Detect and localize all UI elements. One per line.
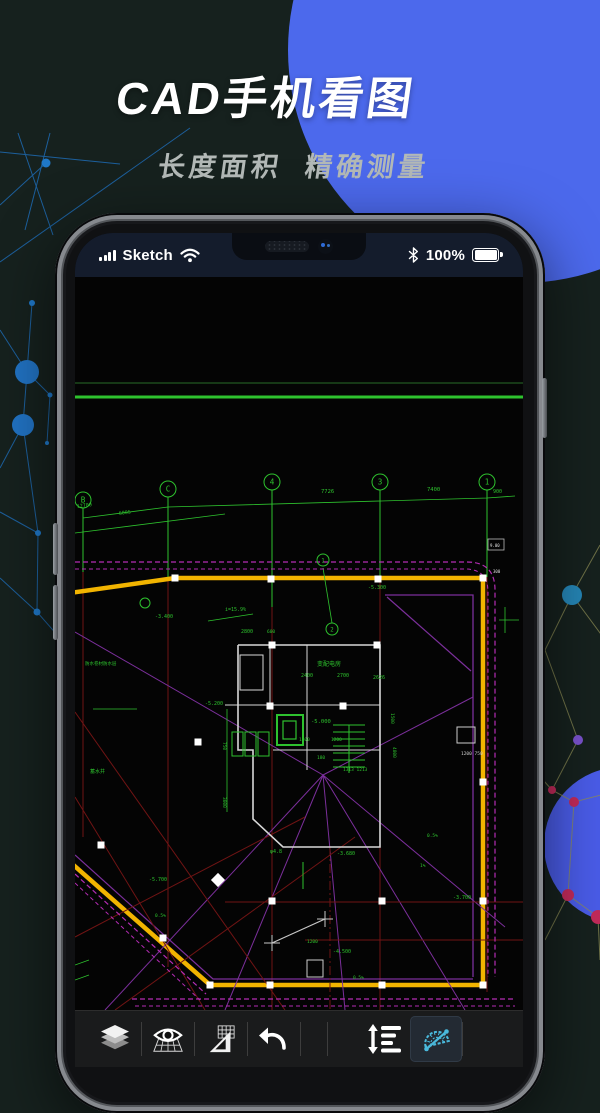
status-bar-left: Sketch (99, 247, 200, 264)
svg-text:1200: 1200 (307, 939, 318, 945)
phone-screen: Sketch 100% BC4311212700600577 (75, 233, 523, 1067)
toolbar-separator (327, 1022, 328, 1056)
svg-text:300: 300 (493, 569, 501, 574)
toolbar-separator (462, 1022, 463, 1056)
svg-text:-3.700: -3.700 (453, 895, 471, 901)
svg-text:2626: 2626 (373, 675, 385, 681)
cad-drawing[interactable]: BC4311212700600577267400900i=15.9%-3.400… (75, 277, 523, 1010)
svg-text:-5.700: -5.700 (149, 877, 167, 883)
wifi-icon (180, 248, 200, 263)
svg-text:0.5%: 0.5% (155, 913, 166, 919)
svg-text:7726: 7726 (321, 489, 334, 495)
svg-text:1500: 1500 (389, 713, 395, 724)
svg-text:1300: 1300 (299, 737, 310, 743)
svg-text:i=15.9%: i=15.9% (225, 607, 246, 613)
speaker-grille (265, 241, 309, 252)
svg-text:1200: 1200 (331, 737, 342, 743)
power-button (542, 378, 547, 438)
eye-grid-icon (151, 1024, 185, 1054)
svg-text:-3.680: -3.680 (337, 851, 355, 857)
svg-text:2800: 2800 (241, 629, 253, 635)
svg-text:750: 750 (221, 742, 227, 750)
undo-button[interactable] (248, 1016, 300, 1062)
svg-text:1200 750: 1200 750 (461, 751, 483, 757)
front-camera (318, 239, 333, 254)
svg-text:-3.400: -3.400 (155, 614, 173, 620)
bluetooth-icon (408, 247, 419, 263)
svg-text:1%: 1% (420, 863, 426, 869)
toolbar-spacer (301, 1016, 327, 1062)
svg-text:-4.500: -4.500 (333, 949, 351, 955)
svg-text:2700: 2700 (337, 673, 349, 679)
svg-text:4: 4 (270, 478, 275, 487)
notch (232, 233, 366, 260)
set-square-button[interactable] (195, 1016, 247, 1062)
svg-text:φ4.8: φ4.8 (270, 849, 282, 855)
svg-text:C: C (166, 485, 171, 494)
view-button[interactable] (142, 1016, 194, 1062)
svg-text:2400: 2400 (301, 673, 313, 679)
page: { "header": { "title": "CAD手机看图", "subti… (0, 0, 600, 1067)
svg-text:-5.300: -5.300 (368, 585, 386, 591)
app-subtitle: 长度面积 精确测量 (0, 145, 597, 184)
svg-text:180: 180 (317, 755, 325, 761)
svg-text:4800: 4800 (391, 747, 397, 758)
svg-text:-5.200: -5.200 (205, 701, 223, 707)
svg-text:1: 1 (321, 559, 325, 565)
protractor-icon (419, 1022, 453, 1056)
layers-icon (99, 1025, 131, 1053)
bottom-toolbar (75, 1010, 523, 1067)
svg-text:3000: 3000 (221, 797, 227, 808)
line-spacing-icon (367, 1024, 401, 1054)
svg-text:1: 1 (485, 478, 490, 487)
svg-text:防水卷材防水层: 防水卷材防水层 (85, 660, 117, 667)
carrier-label: Sketch (123, 247, 173, 264)
svg-text:1313 1213: 1313 1213 (343, 767, 368, 773)
set-square-icon (206, 1024, 236, 1054)
status-bar-right: 100% (408, 247, 499, 264)
svg-text:蓄水井: 蓄水井 (90, 768, 105, 775)
volume-down-button (53, 585, 58, 640)
undo-icon (258, 1025, 290, 1053)
network-nodes-left (12, 159, 53, 616)
svg-text:2: 2 (330, 628, 333, 634)
svg-text:0.5%: 0.5% (353, 975, 364, 981)
svg-text:12700: 12700 (77, 502, 93, 510)
line-spacing-button[interactable] (358, 1016, 410, 1062)
phone-mockup: Sketch 100% BC4311212700600577 (55, 213, 545, 1113)
svg-text:6005: 6005 (119, 510, 132, 517)
battery-icon (472, 248, 499, 263)
svg-text:-5.000: -5.000 (311, 719, 331, 725)
cad-canvas[interactable]: BC4311212700600577267400900i=15.9%-3.400… (75, 277, 523, 1010)
svg-text:变配电房: 变配电房 (317, 660, 341, 668)
svg-text:0.5%: 0.5% (427, 833, 438, 839)
battery-percent-label: 100% (426, 247, 465, 264)
svg-text:3: 3 (378, 478, 383, 487)
layers-button[interactable] (89, 1016, 141, 1062)
hero-header: CAD手机看图 长度面积 精确测量 (0, 62, 600, 184)
svg-text:9.00: 9.00 (490, 543, 500, 548)
volume-up-button (53, 523, 58, 575)
app-title: CAD手机看图 (112, 62, 420, 127)
signal-icon (99, 250, 116, 261)
svg-text:7400: 7400 (427, 487, 440, 493)
svg-text:900: 900 (493, 489, 502, 495)
svg-text:600: 600 (267, 629, 275, 635)
protractor-button[interactable] (410, 1016, 462, 1062)
